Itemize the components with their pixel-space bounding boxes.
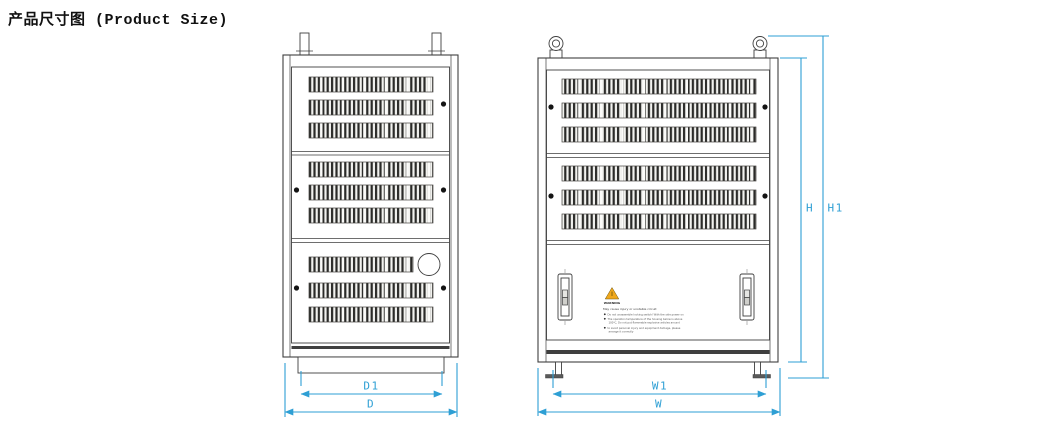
vent-grille-row [309,123,433,138]
warning-line: to avoid personal injury and equipment d… [608,326,681,330]
screw-dot [294,187,299,192]
cabinet-foot [753,362,771,378]
dim-label-d1: D1 [363,380,379,393]
screw-dot [762,193,767,198]
vent-grille-row [309,185,433,200]
screw-dot [294,285,299,290]
dimension-h: H [780,58,814,362]
vent-grille-row [562,190,756,205]
side-view: D1 D [283,33,458,417]
vent-grille-row [309,77,433,92]
vent-grille-row [562,166,756,181]
warning-line: 100℃, Do not put flammable explosive art… [609,321,681,325]
vent-grille-row [562,214,756,229]
lifting-lug [428,33,445,55]
vent-grille-row [309,257,413,272]
warning-line: Do not unassemble locking switch! With t… [608,312,685,316]
panel-bottom-rail [292,346,450,349]
door-handle [740,269,754,325]
dimension-drawing-canvas: D1 D [0,0,1056,439]
round-knockout [418,254,440,276]
cabinet-base-plinth [298,357,444,373]
vent-grille-row [309,307,433,322]
dim-label-h: H [806,202,814,215]
door-handle [558,269,572,325]
vent-grille-row [562,103,756,118]
lifting-eyebolt [549,37,563,59]
front-view: WARNING May cause injury or unstable cir… [538,36,844,416]
dimension-d1: D1 [301,371,442,394]
screw-dot [548,104,553,109]
screw-dot [441,187,446,192]
dim-label-d: D [367,398,375,411]
product-size-page: 产品尺寸图 (Product Size) [0,0,1056,439]
vent-grille-row [562,127,756,142]
screw-dot [762,104,767,109]
vent-grille-row [309,100,433,115]
warning-line: The operation temperature of the housing… [608,317,683,321]
vent-grille-row [309,162,433,177]
lifting-lug [296,33,313,55]
screw-dot [548,193,553,198]
warning-line: arrange it correctly [609,330,634,334]
cabinet-foot [546,362,564,378]
vent-grille-row [309,283,433,298]
panel-bottom-rail [547,350,770,354]
screw-dot [441,101,446,106]
warning-subtitle: May cause injury or unstable circuit [603,307,657,311]
warning-heading: WARNING [604,301,621,305]
dimension-w1: W1 [553,370,766,394]
dim-label-w1: W1 [652,380,668,393]
vent-grille-row [562,79,756,94]
vent-grille-row [309,208,433,223]
screw-dot [441,285,446,290]
lifting-eyebolt [753,37,767,59]
dim-label-w: W [655,398,663,411]
dim-label-h1: H1 [828,202,844,215]
